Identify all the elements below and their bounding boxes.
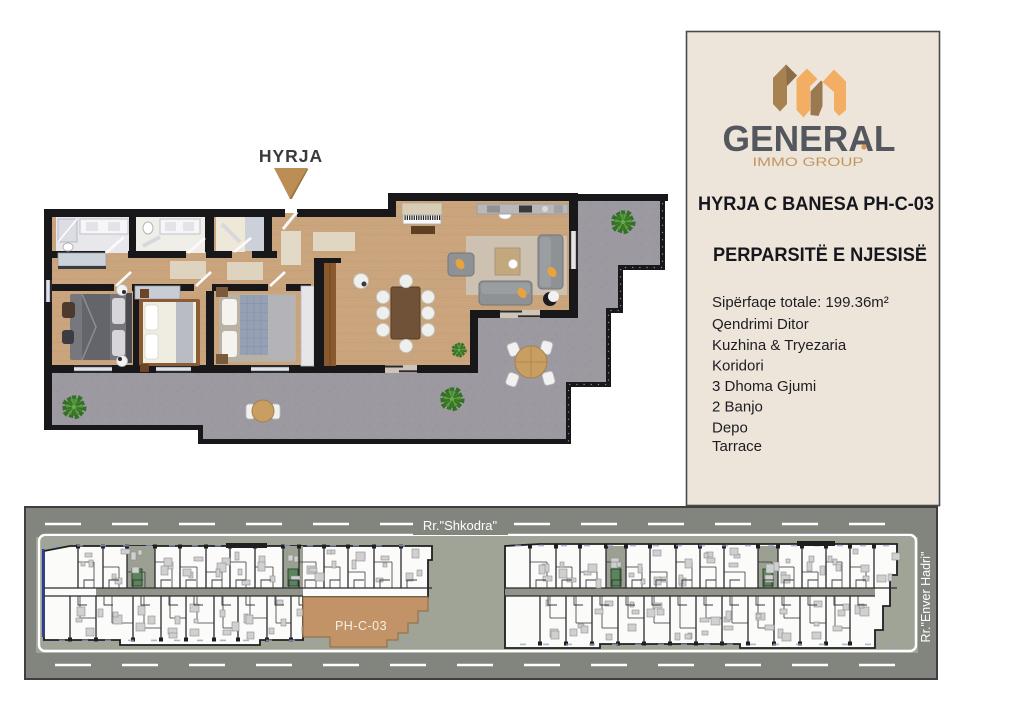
svg-text:GENERAL: GENERAL — [723, 118, 896, 159]
svg-text:HYRJA: HYRJA — [259, 146, 323, 166]
svg-text:Qendrimi Ditor: Qendrimi Ditor — [712, 316, 809, 333]
svg-text:Rr."Enver Hadri": Rr."Enver Hadri" — [919, 552, 933, 643]
svg-text:Sipërfaqe totale: 199.36m²: Sipërfaqe totale: 199.36m² — [712, 294, 889, 311]
svg-text:2 Banjo: 2 Banjo — [712, 399, 763, 416]
svg-text:IMMO GROUP: IMMO GROUP — [753, 157, 864, 169]
svg-text:Kuzhina & Tryezaria: Kuzhina & Tryezaria — [712, 337, 847, 354]
svg-text:Depo: Depo — [712, 420, 748, 437]
svg-text:Tarrace: Tarrace — [712, 438, 762, 455]
svg-text:Rr."Shkodra": Rr."Shkodra" — [423, 518, 498, 533]
svg-text:PH-C-03: PH-C-03 — [335, 619, 387, 633]
svg-text:HYRJA C BANESA PH-C-03: HYRJA C BANESA PH-C-03 — [698, 193, 934, 215]
svg-text:PERPARSITË E NJESISË: PERPARSITË E NJESISË — [713, 243, 927, 266]
svg-text:Koridori: Koridori — [712, 358, 764, 375]
svg-text:3 Dhoma Gjumi: 3 Dhoma Gjumi — [712, 378, 816, 395]
